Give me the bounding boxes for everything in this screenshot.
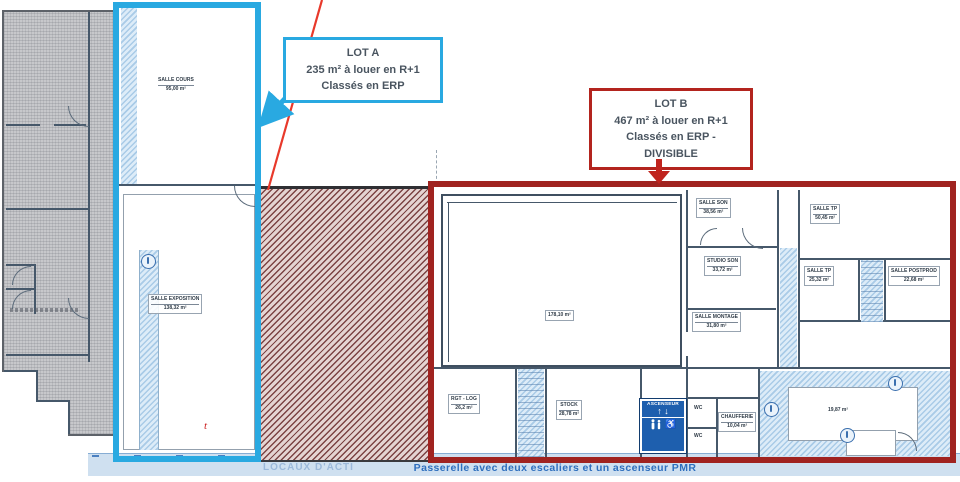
wall [36,370,38,402]
hatched-zone [259,186,431,462]
wall [6,124,40,126]
lot-b-line2: Classés en ERP - [596,129,746,146]
wall [68,400,70,434]
lot-a-line2: Classés en ERP [290,78,436,95]
lot-b-line3: DIVISIBLE [596,146,746,163]
lot-a-outline [113,2,261,462]
wall [38,400,70,402]
lot-a-callout: LOT A 235 m² à louer en R+1 Classés en E… [283,37,443,103]
wall [4,370,38,372]
door-arc-icon [68,298,89,319]
floorplan-canvas: LOCAUX D'ACTI Passerelle avec deux escal… [0,0,960,482]
wall [34,264,36,314]
lot-a-line1: 235 m² à louer en R+1 [290,62,436,79]
lot-b-outline [428,181,956,463]
door-arc-icon [12,290,31,309]
lot-a-title: LOT A [290,45,436,62]
lot-b-arrow-head-icon [648,171,670,184]
wall [6,264,36,266]
lot-b-callout: LOT B 467 m² à louer en R+1 Classés en E… [589,88,753,170]
lot-b-title: LOT B [596,96,746,113]
dashed-reference-line [436,150,437,184]
wall [6,288,36,290]
adjacent-building [2,10,118,436]
wall [6,354,88,356]
building-notch [38,402,68,438]
lot-b-line1: 467 m² à louer en R+1 [596,113,746,130]
passerelle-caption: Passerelle avec deux escaliers et un asc… [295,462,815,474]
wall [6,208,88,210]
building-notch [0,372,38,438]
door-arc-icon [12,266,31,285]
